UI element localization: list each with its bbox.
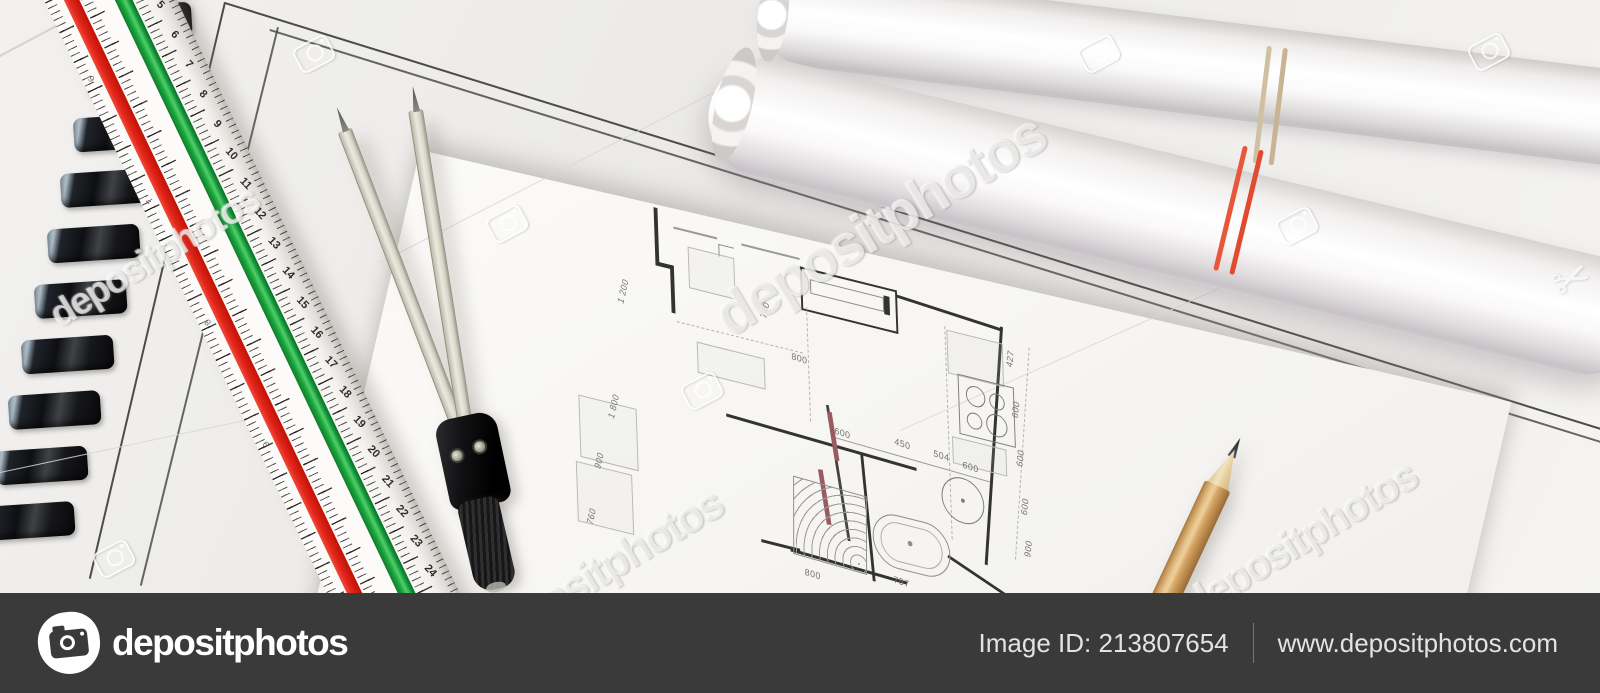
footer-info: Image ID: 213807654 www.depositphotos.co… (979, 623, 1600, 663)
plan-dimension-label: 600 (1019, 496, 1030, 516)
comb-binding-clip (0, 501, 76, 541)
compass-screw (471, 438, 489, 456)
plan-dimension-label: 800 (791, 351, 807, 366)
plan-wall-thin (673, 226, 717, 239)
plan-dimension-label: 504 (933, 448, 949, 463)
plan-wall (884, 295, 890, 315)
plan-wall (947, 555, 1039, 593)
camera-logo-icon (35, 609, 103, 677)
plan-stove (958, 374, 1016, 448)
plan-dimension-label: 757 (893, 574, 909, 589)
footer-bar: depositphotos Image ID: 213807654 www.de… (0, 593, 1600, 693)
comb-binding-clip (8, 390, 102, 430)
plan-dimension-label: 600 (1010, 399, 1021, 419)
plan-wall (726, 413, 916, 471)
plan-wall (654, 207, 659, 265)
website-text: www.depositphotos.com (1278, 628, 1558, 659)
compass-screw (448, 447, 466, 465)
plan-dimension-label: 600 (1015, 448, 1026, 468)
depositphotos-logo: depositphotos (38, 612, 347, 674)
plan-dimension-label: 450 (894, 436, 910, 451)
logo-wordmark: depositphotos (112, 622, 347, 664)
plan-dimension-label: 1 200 (616, 277, 631, 306)
plan-dimension-label: 427 (1004, 349, 1015, 369)
plan-sink-drain (961, 498, 965, 503)
plan-dimension-label: 900 (1023, 539, 1034, 559)
photo-area: 1 2007408006004505046004276006006009001 … (0, 0, 1600, 593)
plan-wall (897, 295, 1002, 332)
footer-divider (1253, 623, 1254, 663)
image-id-text: Image ID: 213807654 (979, 628, 1229, 659)
plan-wall (670, 265, 675, 314)
comb-binding-clip (0, 446, 89, 486)
pencil-graphite-tip (1225, 435, 1247, 460)
plan-shower (793, 476, 867, 575)
stock-photo: 1 2007408006004505046004276006006009001 … (0, 0, 1600, 693)
plan-dimension-label: 800 (805, 566, 821, 581)
comb-binding-clip (21, 335, 115, 375)
